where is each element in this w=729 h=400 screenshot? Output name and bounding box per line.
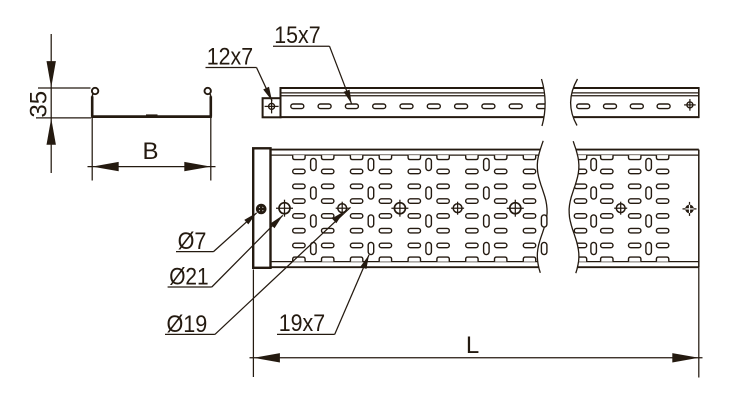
svg-text:Ø19: Ø19	[167, 310, 208, 337]
svg-text:Ø7: Ø7	[178, 227, 207, 254]
svg-text:L: L	[466, 332, 479, 359]
svg-text:35: 35	[26, 91, 53, 118]
svg-text:B: B	[142, 138, 158, 165]
svg-text:12x7: 12x7	[207, 43, 253, 70]
svg-text:Ø21: Ø21	[169, 263, 208, 290]
svg-text:19x7: 19x7	[279, 309, 325, 336]
svg-text:15x7: 15x7	[274, 21, 320, 48]
